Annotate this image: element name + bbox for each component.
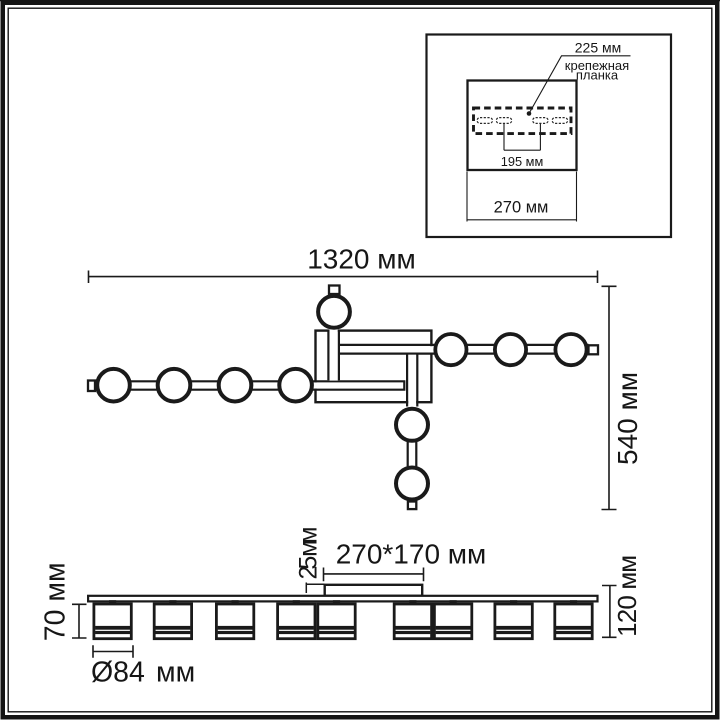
svg-text:мм: мм [156,657,195,689]
svg-text:планка: планка [576,68,619,83]
svg-text:Ø84: Ø84 [91,657,145,689]
svg-text:225 мм: 225 мм [575,40,622,56]
svg-text:270 мм: 270 мм [494,199,549,217]
svg-text:1320 мм: 1320 мм [307,244,416,275]
svg-text:120 мм: 120 мм [612,555,642,637]
svg-text:270*170 мм: 270*170 мм [336,539,487,570]
svg-text:540 мм: 540 мм [612,372,643,465]
svg-text:25 мм: 25 мм [295,527,323,580]
svg-text:195 мм: 195 мм [501,154,544,169]
svg-text:70 мм: 70 мм [40,562,72,641]
